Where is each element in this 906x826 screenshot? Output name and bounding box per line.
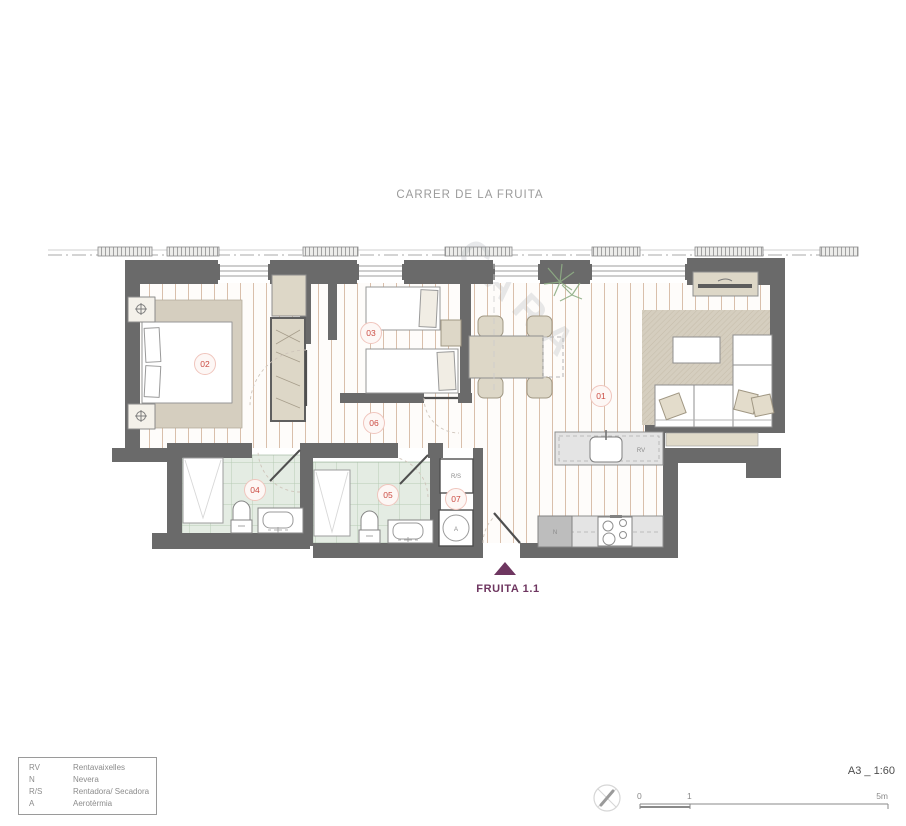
fridge-label: N [553, 530, 557, 536]
scale-bar: 0 1 5m [637, 791, 888, 809]
coffee-table [673, 337, 720, 363]
svg-text:02: 02 [200, 359, 210, 369]
kitchen-sink [590, 437, 622, 462]
svg-text:07: 07 [451, 494, 461, 504]
north-compass-icon [594, 785, 620, 811]
legend: RV Rentavaixelles N Nevera R/S Rentadora… [18, 757, 157, 815]
chair [478, 316, 503, 337]
chair [527, 377, 552, 398]
wardrobe [271, 275, 306, 421]
sheet-scale: A3 _ 1:60 [848, 765, 895, 777]
pillow [437, 352, 456, 391]
floor-plan-drawing: CARA [0, 0, 906, 821]
unit-name: FRUITA 1.1 [476, 583, 539, 595]
washer-dryer-label: R/S [451, 474, 461, 480]
room-label-07: 07 [446, 489, 467, 510]
shower [183, 458, 223, 523]
legend-row: N Nevera [19, 774, 156, 786]
room-label-04: 04 [245, 480, 266, 501]
legend-code: RV [29, 762, 73, 774]
heat-pump-label: A [454, 527, 458, 533]
room-label-02: 02 [195, 354, 216, 375]
dining-table [469, 336, 543, 378]
legend-label: Nevera [73, 774, 99, 786]
legend-row: R/S Rentadora/ Secadora [19, 786, 156, 798]
room-label-01: 01 [591, 386, 612, 407]
svg-text:05: 05 [383, 490, 393, 500]
kitchen-counter-bottom: N [538, 515, 663, 547]
entrance-marker: FRUITA 1.1 [476, 562, 539, 595]
legend-row: A Aerotèrmia [19, 798, 156, 810]
terrace-sill [666, 433, 758, 446]
legend-row: RV Rentavaixelles [19, 762, 156, 774]
svg-text:06: 06 [369, 418, 379, 428]
nightstand [128, 297, 155, 322]
legend-label: Rentavaixelles [73, 762, 125, 774]
nightstand [441, 320, 461, 346]
washbasin [388, 520, 433, 543]
room-label-03: 03 [361, 323, 382, 344]
legend-label: Rentadora/ Secadora [73, 786, 149, 798]
washbasin [258, 508, 303, 533]
legend-code: N [29, 774, 73, 786]
floor-plan-sheet: CARA [0, 0, 906, 821]
entrance-triangle-icon [494, 562, 516, 575]
toilet [359, 511, 380, 543]
tv-console [693, 272, 758, 296]
cushion [751, 394, 774, 417]
room-label-06: 06 [364, 413, 385, 434]
chair [527, 316, 552, 337]
nightstand [128, 404, 155, 429]
scale-tick-0: 0 [637, 791, 642, 801]
chair [478, 377, 503, 398]
legend-label: Aerotèrmia [73, 798, 112, 810]
svg-text:04: 04 [250, 485, 260, 495]
street-name: CARRER DE LA FRUITA [396, 189, 543, 201]
scale-tick-5m: 5m [876, 791, 888, 801]
dishwasher-label: RV [637, 448, 645, 454]
stove [598, 515, 632, 546]
svg-text:03: 03 [366, 328, 376, 338]
pillow [419, 290, 438, 328]
svg-text:01: 01 [596, 391, 606, 401]
legend-code: A [29, 798, 73, 810]
kitchen-counter-top: RV [555, 430, 663, 465]
shower [314, 470, 350, 536]
bedroom-02-furniture [128, 297, 242, 429]
pillow [144, 366, 161, 398]
toilet [231, 501, 252, 533]
pillow [144, 328, 161, 363]
scale-tick-1: 1 [687, 791, 692, 801]
room-label-05: 05 [378, 485, 399, 506]
legend-code: R/S [29, 786, 73, 798]
